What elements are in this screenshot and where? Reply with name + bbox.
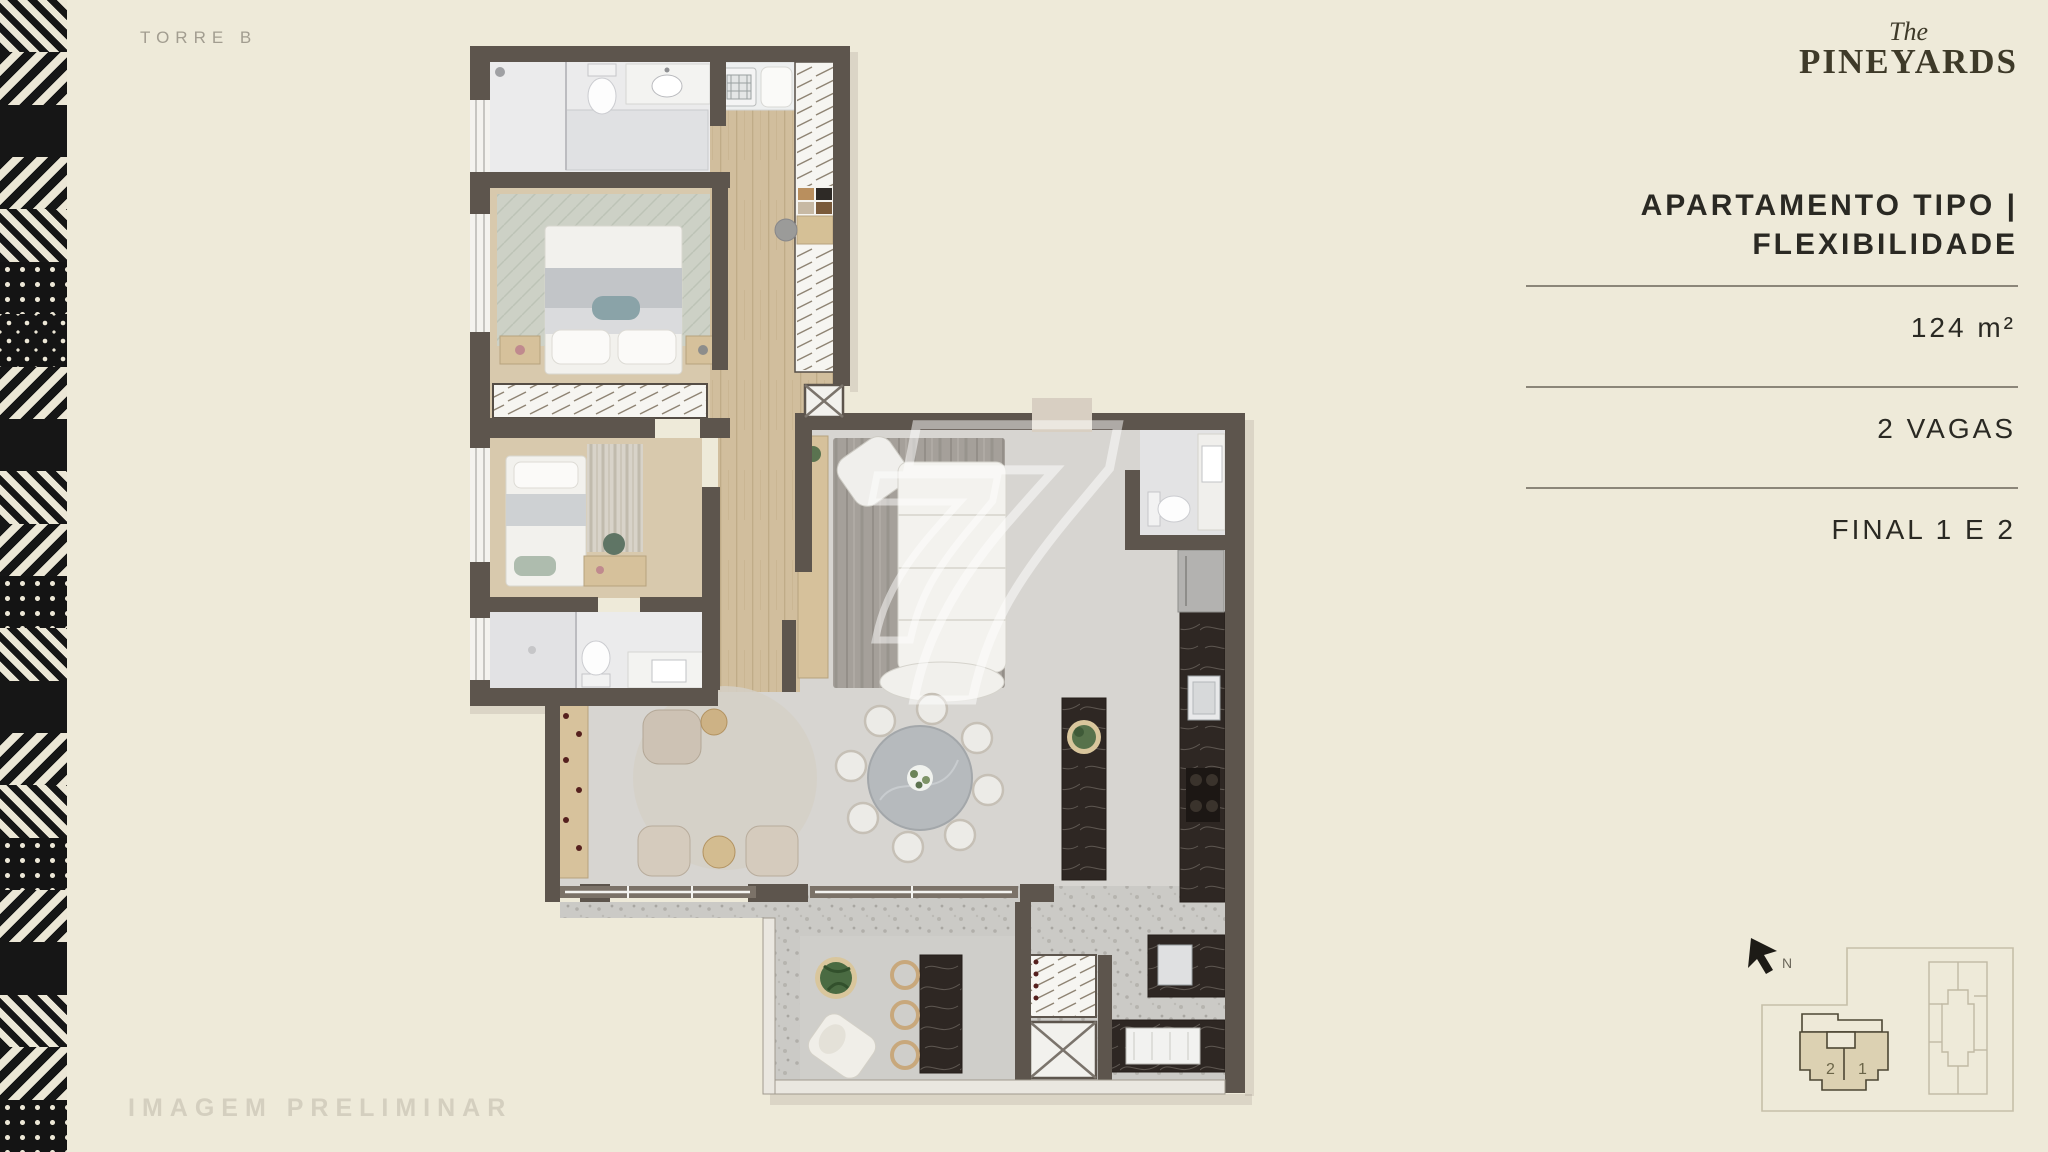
- toilet: [582, 641, 610, 675]
- floor-plan: 7 7: [470, 46, 1254, 1105]
- sink: [1202, 446, 1222, 482]
- grill: [1126, 1028, 1200, 1064]
- tower-b-footprint: [1800, 1014, 1888, 1090]
- sink: [1158, 945, 1192, 985]
- coffee-table: [703, 836, 735, 868]
- north-label: N: [1782, 955, 1792, 971]
- unit-2-label: 2: [1826, 1061, 1835, 1078]
- svg-text:7: 7: [880, 338, 1124, 785]
- floorplan-canvas: 7 7 N 2 1: [0, 0, 2048, 1152]
- tower-a-footprint: [1929, 962, 1987, 1094]
- sink: [652, 75, 682, 97]
- stool: [775, 219, 797, 241]
- laundry-area: [716, 62, 798, 110]
- wardrobe: [493, 384, 707, 418]
- toilet: [1158, 496, 1190, 522]
- armchair: [643, 710, 701, 764]
- side-table: [701, 709, 727, 735]
- vanity-desk: [797, 216, 833, 244]
- north-arrow-icon: [1748, 938, 1777, 974]
- armchair: [746, 826, 798, 876]
- wine-cabinet: [558, 700, 588, 878]
- duct-shaft: [805, 385, 843, 417]
- brand-numeral-watermark: 7 7: [855, 338, 1124, 785]
- pantry-shelf: [1030, 955, 1096, 1017]
- shower-head: [495, 67, 505, 77]
- kitchen-counter: [1180, 612, 1225, 902]
- sink: [652, 660, 686, 682]
- key-plan: N 2 1: [1748, 938, 2013, 1111]
- unit-1-label: 1: [1858, 1061, 1867, 1078]
- chair: [603, 533, 625, 555]
- bar-table: [920, 955, 962, 1073]
- laundry-basket: [761, 67, 792, 107]
- site-boundary: [1762, 948, 2013, 1111]
- armchair: [638, 826, 690, 876]
- toilet: [588, 78, 616, 114]
- desk: [584, 556, 646, 586]
- fridge: [1178, 550, 1224, 612]
